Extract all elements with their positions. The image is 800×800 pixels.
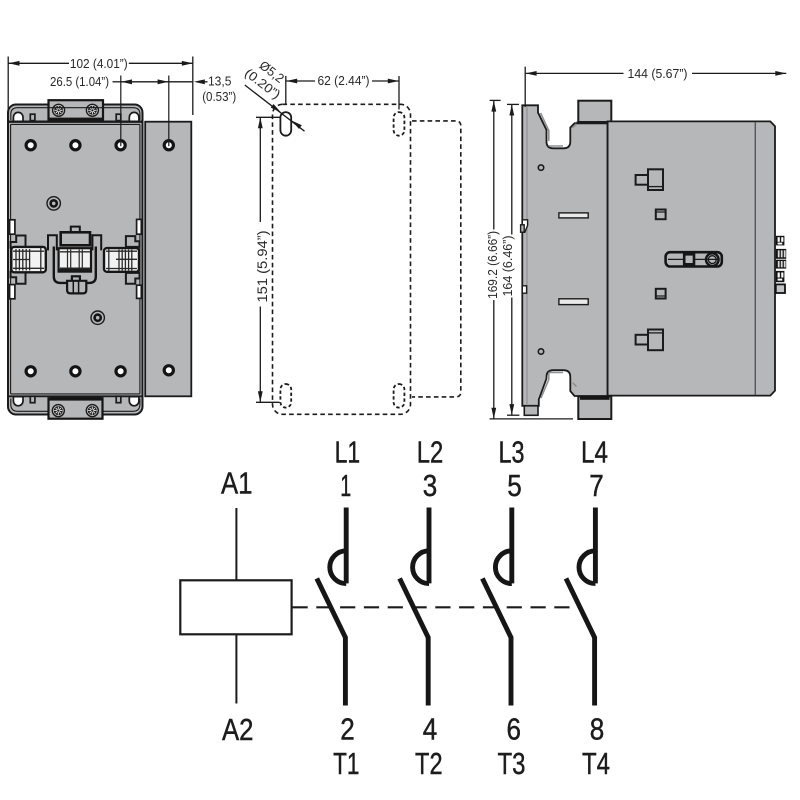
svg-text:62 (2.44”): 62 (2.44”) xyxy=(318,73,370,88)
svg-text:T4: T4 xyxy=(582,747,610,781)
svg-text:8: 8 xyxy=(590,713,605,747)
svg-text:A2: A2 xyxy=(222,713,254,747)
svg-text:26.5 (1.04”): 26.5 (1.04”) xyxy=(50,74,109,89)
svg-text:2: 2 xyxy=(340,713,355,747)
svg-text:144 (5.67”): 144 (5.67”) xyxy=(628,66,688,81)
svg-text:L1: L1 xyxy=(335,436,361,470)
svg-text:T3: T3 xyxy=(498,747,526,781)
svg-text:7: 7 xyxy=(589,469,604,503)
svg-text:1: 1 xyxy=(340,469,351,503)
svg-text:4: 4 xyxy=(423,713,438,747)
svg-text:A1: A1 xyxy=(221,467,253,501)
svg-text:164 (6.46”): 164 (6.46”) xyxy=(500,236,515,297)
svg-text:(0.53”): (0.53”) xyxy=(202,89,236,104)
svg-text:L3: L3 xyxy=(499,436,525,470)
svg-text:13,5: 13,5 xyxy=(208,73,231,88)
svg-text:L2: L2 xyxy=(417,436,444,470)
svg-text:151 (5.94”): 151 (5.94”) xyxy=(255,231,271,303)
svg-text:T1: T1 xyxy=(333,747,359,781)
svg-text:102 (4.01”): 102 (4.01”) xyxy=(70,56,128,71)
svg-text:5: 5 xyxy=(507,469,522,503)
svg-text:169.2 (6.66”): 169.2 (6.66”) xyxy=(485,231,500,299)
svg-text:3: 3 xyxy=(423,469,438,503)
svg-text:T2: T2 xyxy=(415,747,443,781)
svg-text:6: 6 xyxy=(506,713,521,747)
svg-text:L4: L4 xyxy=(581,436,608,470)
